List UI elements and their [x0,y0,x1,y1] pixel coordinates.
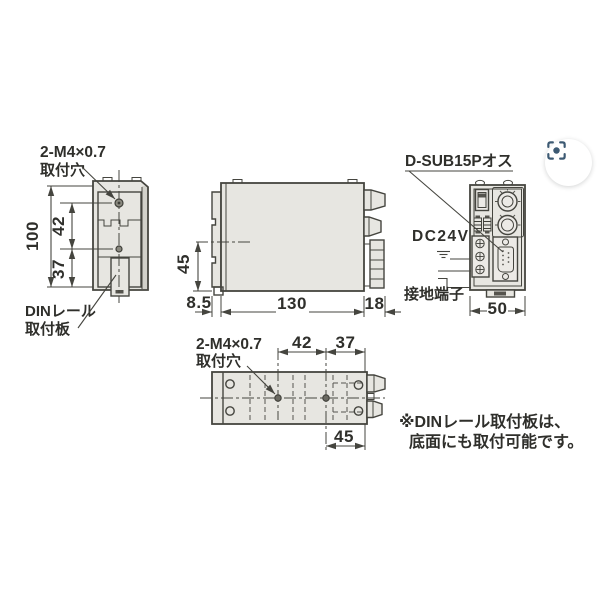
image-search-lens-icon [545,139,568,162]
hook-upper [364,190,385,210]
terminal-wire-lines [438,259,471,288]
hole-callout-line1: 2-M4×0.7 [196,336,262,353]
body-edge-shade [142,186,147,289]
ground-terminal-label: 接地端子 [404,285,464,303]
hook-lower [364,217,381,236]
hole-callout-line2: 取付穴 [40,161,85,179]
mounting-hole-left [275,395,281,401]
bottom-tab-slot [494,292,506,296]
image-search-lens-button[interactable] [545,139,592,186]
din-plate-edge [212,192,221,287]
dsub-connector [493,237,518,281]
switch-rocker [479,194,486,198]
dim-42-label: 42 [49,216,68,236]
product-technical-drawing: 100 42 37 2-M4×0.7 取付穴 DINレール 取付板 [0,0,600,600]
mounting-hole-top-center [118,202,121,205]
power-label: DC24V [412,228,469,245]
dim-45-label: 45 [334,427,354,446]
dim-8-5-label: 8.5 [186,293,211,312]
dim-130-label: 130 [277,294,307,313]
footnote: ※DINレール取付板は、 底面にも取付可能です。 [399,412,583,451]
hook-lower [367,401,382,418]
mounting-hole-bottom [116,246,122,252]
body-outline [221,183,364,291]
dim-50-label: 50 [488,299,508,318]
left-side-view [93,170,148,303]
terminal-block-side [370,240,384,288]
dim-100-label: 100 [23,221,42,251]
dim-37-label: 37 [336,333,356,352]
front-panel-view [470,180,525,297]
power-terminal-block [472,236,489,277]
mounting-hole-right [323,395,329,401]
terminal-edge [367,394,374,400]
hook-upper [367,375,385,392]
aux-connector-right [484,216,492,234]
dim-45-label: 45 [174,254,193,274]
footnote-line2: 底面にも取付可能です。 [409,432,583,451]
hole-callout-line2: 取付穴 [196,352,241,370]
footnote-line1: ※DINレール取付板は、 [399,412,570,431]
dsub-callout: D-SUB15Pオス [405,152,513,170]
dim-18-label: 18 [365,294,385,313]
din-callout-line2: 取付板 [25,320,71,338]
hole-callout-line1: 2-M4×0.7 [40,144,106,161]
middle-side-view [196,180,385,296]
dim-37-label: 37 [49,259,68,279]
dim-42-label: 42 [292,333,312,352]
ground-symbol [437,252,450,258]
dimension-drawing-canvas: 100 42 37 2-M4×0.7 取付穴 DINレール 取付板 [0,0,600,600]
